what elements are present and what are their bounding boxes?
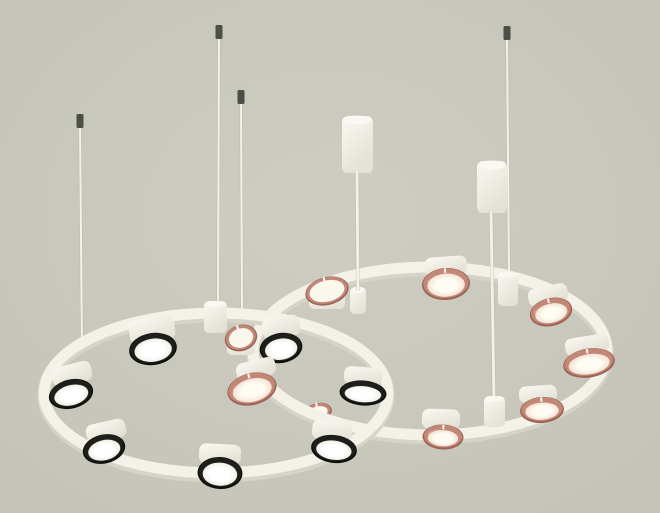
- joint-top: [499, 272, 517, 278]
- canopy-cord: [491, 211, 494, 400]
- wire-cable: [218, 38, 219, 304]
- cord-joint: [350, 287, 366, 314]
- wire-end-cap: [504, 26, 511, 40]
- wire-end-cap: [77, 114, 84, 128]
- wire-end-cap: [216, 25, 223, 39]
- left-ring-hub: [204, 301, 227, 333]
- canopy-top: [479, 161, 506, 170]
- joint-top: [205, 301, 226, 307]
- wire-end-cap: [238, 90, 245, 104]
- canopy-top: [344, 116, 372, 125]
- rim-slit: [442, 425, 444, 430]
- joint-top: [485, 396, 504, 402]
- right-ring-top-joint: [498, 272, 518, 306]
- canopy-cylinder: [342, 116, 373, 174]
- chandelier-illustration: [0, 0, 660, 513]
- pendant-shade-copper-trim: [422, 408, 464, 450]
- rim-slit: [444, 268, 446, 273]
- pendant-shade-black-trim: [197, 443, 244, 490]
- canopy-cylinder: [477, 161, 507, 214]
- wire-cable: [241, 103, 242, 310]
- canopy-cord: [357, 170, 358, 291]
- chandelier-product-photo: [0, 0, 660, 513]
- cord-cable: [357, 170, 358, 291]
- canopy-body: [342, 116, 373, 173]
- right-ring-bottom-joint: [484, 396, 505, 427]
- rim-slit: [540, 397, 542, 402]
